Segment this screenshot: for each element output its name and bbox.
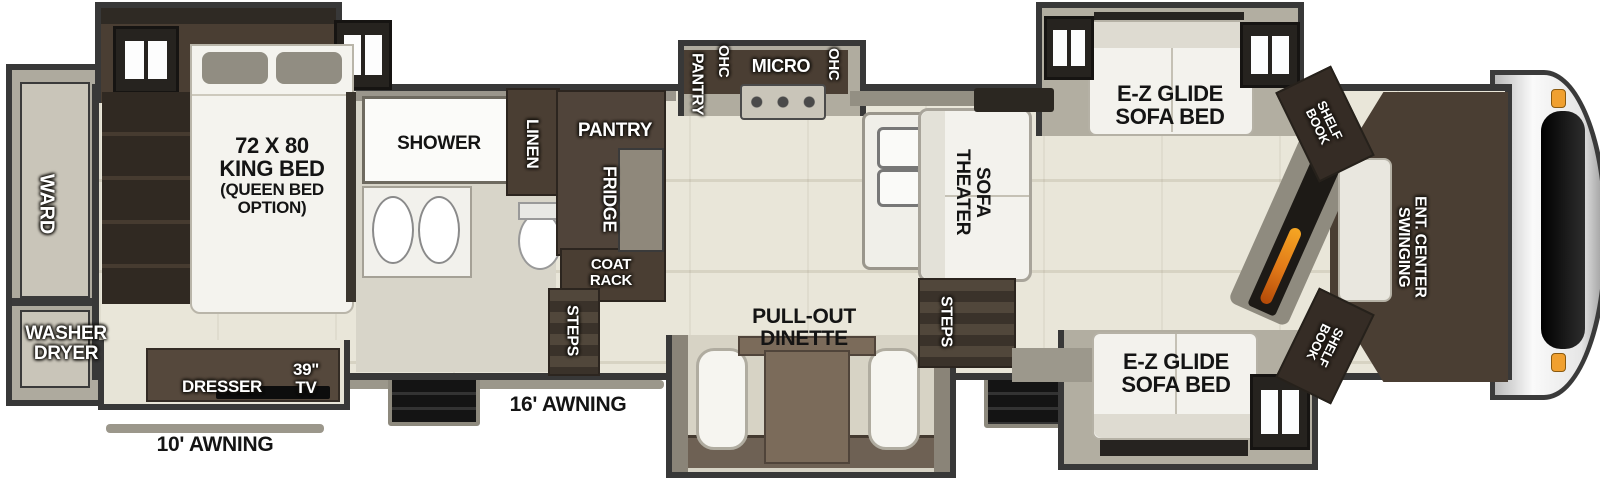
- floor-wedge: [1012, 348, 1092, 382]
- sink-icon: [877, 169, 923, 207]
- dinette-table: [764, 350, 850, 464]
- pillow: [276, 52, 342, 84]
- king-bed-label: 72 X 80 KING BED (QUEEN BED OPTION): [194, 120, 350, 232]
- marker-light-icon: [1551, 353, 1566, 372]
- window-icon: [1044, 16, 1094, 80]
- awning-10-label: 10' AWNING: [138, 432, 292, 458]
- sofa-bed-bottom-label: E-Z GLIDESOFA BED: [1084, 346, 1268, 402]
- dresser-label: DRESSER: [166, 376, 278, 398]
- theater-sofa-label: THEATERSOFA: [944, 126, 1000, 258]
- dinette-label: PULL-OUTDINETTE: [722, 300, 886, 356]
- ohc-left-label: OHC: [710, 34, 736, 88]
- pantry-label: PANTRY: [566, 118, 664, 144]
- linen-label: LINEN: [514, 100, 550, 188]
- ward-divider: [12, 298, 92, 306]
- dinette-chair: [696, 348, 748, 450]
- sink-icon: [372, 196, 414, 264]
- front-window: [1541, 111, 1585, 349]
- dinette-wall: [672, 335, 688, 472]
- rv-floorplan: BOOKSHELF BOOKSHELF WARD WASHERDRYER 72 …: [0, 0, 1600, 490]
- tv-panel: [974, 88, 1054, 112]
- fridge-label: FRIDGE: [592, 148, 626, 250]
- dinette-chair: [868, 348, 920, 450]
- washer-dryer-label: WASHERDRYER: [8, 320, 124, 368]
- awning-16-label: 16' AWNING: [490, 392, 646, 418]
- micro-label: MICRO: [736, 54, 826, 78]
- ent-desk: [1338, 158, 1392, 302]
- marker-light-icon: [1551, 89, 1566, 108]
- steps-right-label: STEPS: [928, 280, 962, 362]
- book-shelf-label: BOOKSHELF: [1303, 99, 1345, 148]
- entry-steps-icon: [984, 376, 1064, 428]
- coat-rack-label: COATRACK: [562, 252, 660, 294]
- ward-label: WARD: [26, 148, 66, 260]
- steps-left-label: STEPS: [554, 290, 588, 370]
- sink-icon: [418, 196, 460, 264]
- window-icon: [113, 26, 179, 94]
- book-shelf-label: BOOKSHELF: [1303, 320, 1345, 369]
- ohc-right-label: OHC: [820, 36, 846, 92]
- bath-vanity: [362, 186, 472, 278]
- stove-icon: [740, 84, 826, 120]
- sofa-bed-top-label: E-Z GLIDESOFA BED: [1078, 78, 1262, 134]
- ohc-pantry-label: PANTRY: [682, 30, 710, 138]
- shower-label: SHOWER: [378, 132, 500, 156]
- pillow: [202, 52, 268, 84]
- tv-label: 39"TV: [282, 358, 330, 400]
- wardrobe-cabinet: [102, 92, 190, 304]
- entry-steps-icon: [388, 376, 480, 426]
- ent-center-label: SWINGINGENT. CENTER: [1386, 176, 1436, 318]
